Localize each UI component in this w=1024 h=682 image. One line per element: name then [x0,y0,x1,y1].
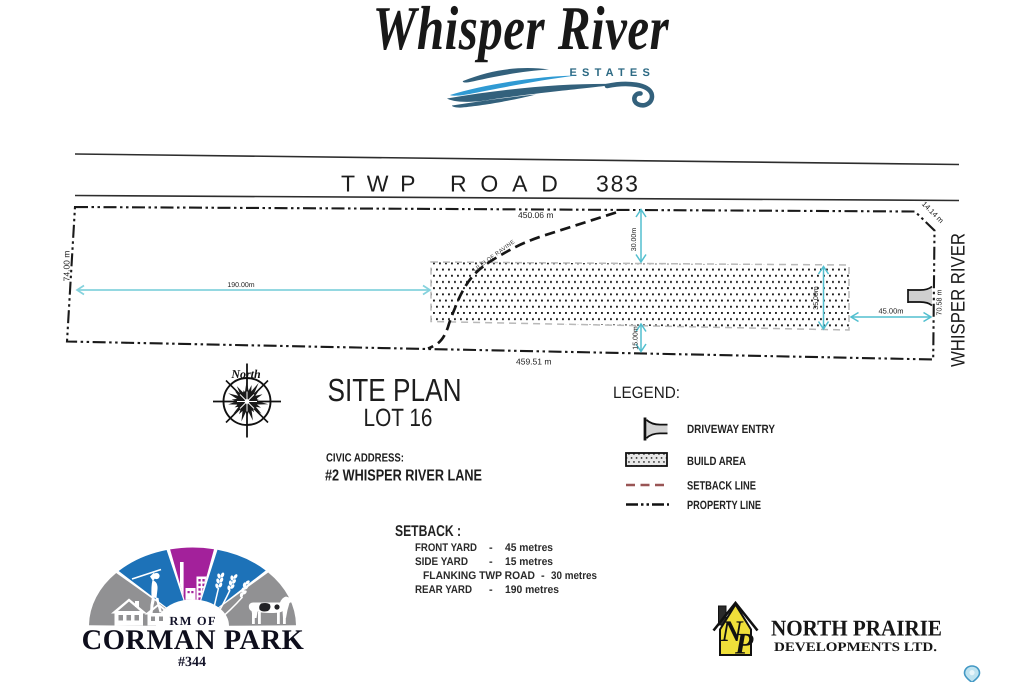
svg-text:459.51 m: 459.51 m [516,357,551,367]
svg-text:450.06 m: 450.06 m [518,210,553,220]
svg-text:SIDE YARD: SIDE YARD [415,556,468,568]
svg-text:ROAD: ROAD [450,171,572,197]
svg-text:-: - [489,556,493,568]
svg-text:45.00m: 45.00m [878,307,903,316]
svg-text:30.00m: 30.00m [631,228,638,252]
svg-text:30 metres: 30 metres [551,570,597,582]
svg-text:70.58 m: 70.58 m [935,290,944,316]
svg-text:WHISPER RIVER: WHISPER RIVER [948,233,970,367]
svg-text:ESTATES: ESTATES [570,67,656,79]
svg-text:FLANKING TWP ROAD: FLANKING TWP ROAD [423,570,535,582]
svg-text:#344: #344 [178,655,206,670]
svg-text:383: 383 [596,171,640,197]
svg-text:-: - [541,570,545,582]
svg-text:SITE PLAN: SITE PLAN [328,372,462,408]
svg-text:14.14 m: 14.14 m [920,199,946,225]
svg-text:190.00m: 190.00m [227,282,254,289]
svg-text:BUILD AREA: BUILD AREA [687,454,746,468]
svg-text:190 metres: 190 metres [505,584,559,596]
svg-text:15 metres: 15 metres [505,556,553,568]
svg-text:-: - [489,584,493,596]
svg-text:LEGEND:: LEGEND: [613,384,680,402]
svg-text:P: P [734,628,754,661]
svg-text:15.00m: 15.00m [633,326,640,350]
svg-text:DEVELOPMENTS LTD.: DEVELOPMENTS LTD. [774,639,937,654]
svg-text:CORMAN PARK: CORMAN PARK [82,625,305,656]
svg-text:-: - [489,542,493,554]
svg-text:SETBACK :: SETBACK : [395,523,461,540]
svg-text:Whisper River: Whisper River [373,0,670,63]
svg-text:PROPERTY LINE: PROPERTY LINE [687,498,761,512]
svg-text:35.00m: 35.00m [813,286,820,310]
svg-text:#2 WHISPER RIVER LANE: #2 WHISPER RIVER LANE [325,468,482,485]
svg-text:74.00 m: 74.00 m [62,251,72,282]
svg-text:North: North [230,367,261,381]
svg-text:45 metres: 45 metres [505,542,553,554]
svg-text:SETBACK LINE: SETBACK LINE [687,479,756,493]
svg-text:NORTH PRAIRIE: NORTH PRAIRIE [771,616,942,641]
svg-text:CIVIC ADDRESS:: CIVIC ADDRESS: [326,451,404,465]
svg-text:FRONT YARD: FRONT YARD [415,542,477,554]
svg-text:REAR YARD: REAR YARD [415,584,472,596]
svg-text:DRIVEWAY ENTRY: DRIVEWAY ENTRY [687,422,775,436]
svg-text:LOT 16: LOT 16 [364,404,433,432]
svg-text:TWP: TWP [341,171,427,197]
